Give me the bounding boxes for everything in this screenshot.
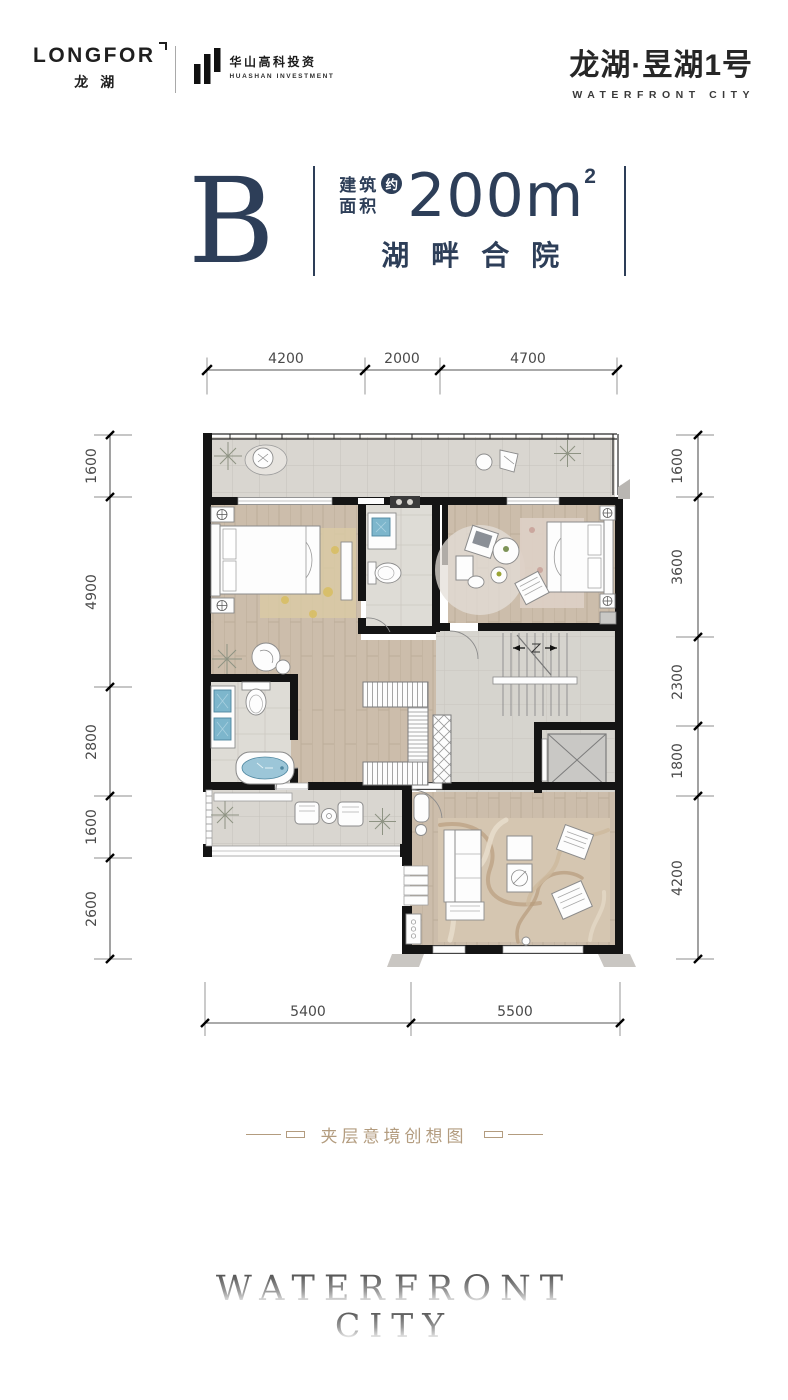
- caption-ornament-box: [286, 1131, 305, 1138]
- dim-label: 1600: [84, 809, 100, 845]
- dim-label: 1600: [84, 448, 100, 484]
- area-superscript: 2: [584, 165, 596, 189]
- dim-label: 5400: [290, 1004, 326, 1020]
- header-logo-divider: [175, 46, 176, 93]
- dim-label: 4900: [84, 574, 100, 610]
- dim-label: 5500: [497, 1004, 533, 1020]
- project-cn-label: 龙湖·昱湖1号: [567, 40, 755, 84]
- dim-label: 2000: [384, 351, 420, 367]
- title-divider-right: [624, 166, 627, 276]
- dim-label: 2600: [84, 891, 100, 927]
- dim-label: 4200: [670, 860, 686, 896]
- approx-badge: 约: [381, 173, 402, 194]
- area-value: 200m: [407, 169, 584, 223]
- caption-ornament-line: [508, 1134, 543, 1136]
- caption-text: 夹层意境创想图: [321, 1122, 468, 1147]
- dim-label: 2800: [84, 724, 100, 760]
- huashan-en-label: HUASHAN INVESTMENT: [230, 73, 335, 80]
- caption-ornament-line: [246, 1134, 281, 1136]
- watermark-line1: WATERFRONT: [0, 1272, 788, 1307]
- project-en-label: WATERFRONT CITY: [567, 89, 755, 101]
- dim-label: 4200: [268, 351, 304, 367]
- bathroom-mid-fixtures: [368, 513, 401, 584]
- project-logo: 龙湖·昱湖1号 WATERFRONT CITY: [567, 40, 755, 101]
- dim-label: 4700: [510, 351, 546, 367]
- longfor-wordmark: LONGFOR: [33, 44, 156, 68]
- header-left: LONGFOR 龙湖 华山高科投资 HUASHAN INVESTMENT: [33, 44, 335, 93]
- dimension-top: 4200 2000 4700: [203, 351, 621, 394]
- unit-subtitle: 湖畔合院: [339, 234, 596, 274]
- huashan-bars-icon: [193, 48, 223, 88]
- unit-title-block: B 建筑 面积 约 200m 2 湖畔合院: [188, 166, 626, 276]
- longfor-corner-icon: [159, 42, 167, 50]
- caption-ornament-box: [484, 1131, 503, 1138]
- dim-label: 3600: [670, 549, 686, 585]
- unit-letter: B: [188, 167, 275, 276]
- floor-plan: 4200 2000 4700 5400 5500 1600 4900 2800 …: [70, 330, 720, 1050]
- watermark-line2: CITY: [0, 1309, 788, 1342]
- dim-label: 1600: [670, 448, 686, 484]
- plan-caption: 夹层意境创想图: [0, 1122, 788, 1147]
- huashan-logo: 华山高科投资 HUASHAN INVESTMENT: [193, 48, 335, 88]
- dim-label: 1800: [670, 743, 686, 779]
- area-label-line2: 面积: [339, 196, 379, 217]
- dimension-left: 1600 4900 2800 1600 2600: [84, 431, 132, 963]
- dimension-bottom: 5400 5500: [201, 982, 624, 1036]
- dimension-right: 1600 3600 2300 1800 4200: [670, 431, 714, 963]
- brand-watermark: WATERFRONT CITY: [0, 1272, 788, 1342]
- longfor-wordmark-text: LONGFOR: [33, 44, 156, 67]
- huashan-cn-label: 华山高科投资: [230, 53, 335, 70]
- dim-label: 2300: [670, 664, 686, 700]
- area-label-line1: 建筑: [339, 175, 379, 196]
- area-label: 建筑 面积: [339, 175, 379, 218]
- longfor-cn-label: 龙湖: [62, 72, 126, 92]
- longfor-logo: LONGFOR 龙湖: [33, 44, 156, 92]
- staircase: [493, 631, 577, 719]
